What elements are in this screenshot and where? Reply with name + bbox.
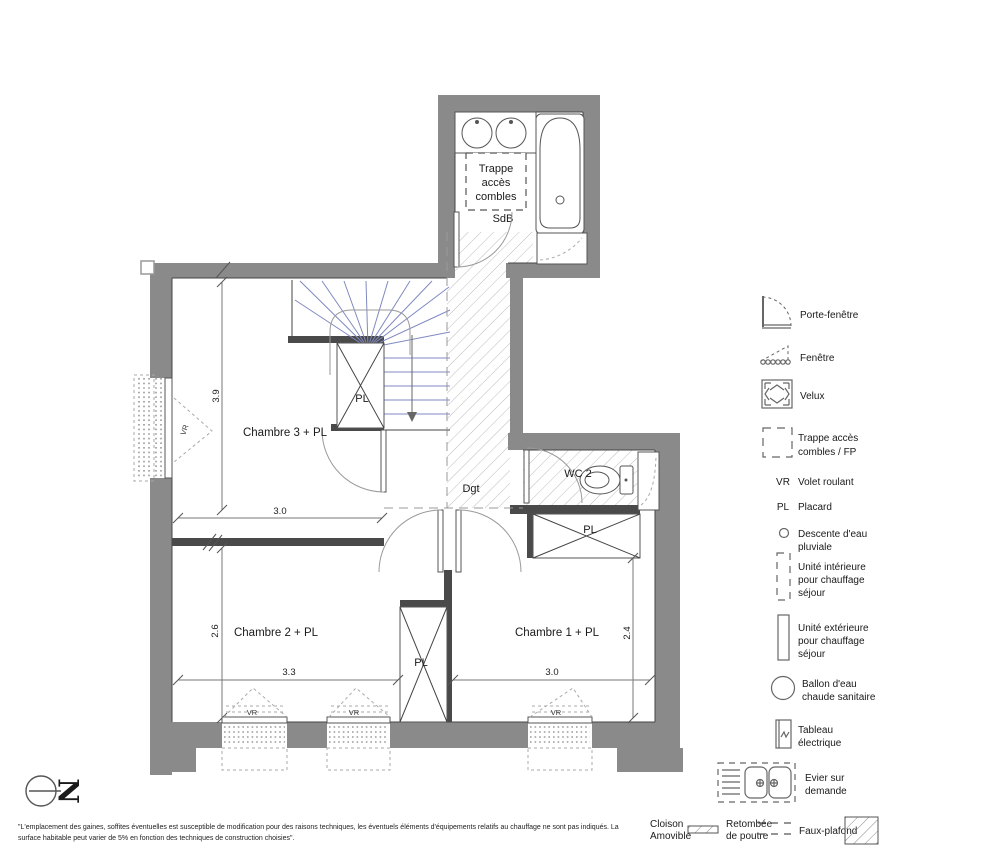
dgt-label: Dgt xyxy=(462,483,479,495)
legend-descente-line1: Descente d'eau xyxy=(798,529,867,540)
dim-ch2-width: 3.3 xyxy=(282,667,295,678)
legend-porte-fenetre: Porte-fenêtre xyxy=(800,310,859,321)
legend-fenetre: Fenêtre xyxy=(800,353,835,364)
window-left-vr: VR xyxy=(134,375,212,481)
stair-down-arrow xyxy=(407,412,417,422)
closet-under-stairs: PL xyxy=(337,343,384,428)
velux-icon xyxy=(762,380,792,408)
tableau-electrique-icon xyxy=(776,720,791,748)
footer-line1: "L'emplacement des gaines, soffites éven… xyxy=(18,824,619,831)
legend-unite-ext-line1: Unité extérieure xyxy=(798,623,869,634)
chambre1-label: Chambre 1 + PL xyxy=(515,627,600,639)
legend-unite-ext-line3: séjour xyxy=(798,649,826,660)
ballon-eau-icon xyxy=(772,677,795,700)
footer-line2: surface habitable peut varier de 5% en f… xyxy=(18,835,294,842)
cloison-amovible-icon xyxy=(688,826,718,833)
sdb-label: SdB xyxy=(493,213,514,225)
legend-tableau-line2: électrique xyxy=(798,738,842,749)
closet-ch2-label: PL xyxy=(414,657,427,669)
trappe-label-line2: accès xyxy=(482,177,511,189)
legend-vr-label: Volet roulant xyxy=(798,477,854,488)
chambre3-label: Chambre 3 + PL xyxy=(243,427,328,439)
dim-ch1-width: 3.0 xyxy=(545,667,558,678)
dim-ch2-height: 2.6 xyxy=(210,624,221,637)
north-letter: N xyxy=(52,778,85,804)
unite-interieure-icon xyxy=(777,553,790,600)
north-compass-icon: N xyxy=(26,776,85,806)
vr-bottom3-label: VR xyxy=(551,708,562,717)
closet-under-stairs-label: PL xyxy=(355,393,368,405)
legend-velux: Velux xyxy=(800,391,824,402)
legend-retombee-line1: Retombée xyxy=(726,819,773,830)
legend-unite-ext-line2: pour chauffage xyxy=(798,636,865,647)
dim-ch3-height: 3.9 xyxy=(211,389,222,402)
legend: Porte-fenêtre Fenêtre Velux Trappe accès… xyxy=(718,296,876,802)
descente-eau-marker xyxy=(141,261,154,274)
chambre2-label: Chambre 2 + PL xyxy=(234,627,319,639)
floor-plan: PL Trappe accès combles SdB WC 2 xyxy=(0,0,1000,857)
fenetre-icon xyxy=(761,346,790,364)
legend-unite-int-line3: séjour xyxy=(798,588,826,599)
faux-plafond-icon xyxy=(845,817,878,844)
legend-retombee-line2: de poutre xyxy=(726,831,769,842)
legend-cloison-line1: Cloison xyxy=(650,819,683,830)
legend-ballon-line1: Ballon d'eau xyxy=(802,679,857,690)
trappe-label-line3: combles xyxy=(476,191,517,203)
closet-ch1-label: PL xyxy=(583,524,596,536)
vr-bottom1-label: VR xyxy=(247,708,258,717)
legend-vr-abbr: VR xyxy=(776,477,790,488)
legend-trappe-line1: Trappe accès xyxy=(798,433,858,444)
evier-icon xyxy=(718,763,795,802)
legend-evier-line1: Evier sur xyxy=(805,773,845,784)
descente-eau-icon xyxy=(780,529,789,538)
legend-trappe-line2: combles / FP xyxy=(798,447,857,458)
legend-bottom-row: Cloison Amovible Retombée de poutre Faux… xyxy=(650,817,878,844)
legend-unite-int-line1: Unité intérieure xyxy=(798,562,866,573)
vr-bottom2-label: VR xyxy=(349,708,360,717)
legend-evier-line2: demande xyxy=(805,786,847,797)
legend-pl-abbr: PL xyxy=(777,502,790,513)
wc-label: WC 2 xyxy=(564,468,592,480)
trappe-acces-icon xyxy=(763,428,792,457)
legend-unite-int-line2: pour chauffage xyxy=(798,575,865,586)
footer-note: "L'emplacement des gaines, soffites éven… xyxy=(18,824,619,842)
legend-ballon-line2: chaude sanitaire xyxy=(802,692,876,703)
legend-tableau-line1: Tableau xyxy=(798,725,833,736)
porte-fenetre-icon xyxy=(762,296,791,328)
unite-exterieure-icon xyxy=(778,615,789,660)
legend-cloison-line2: Amovible xyxy=(650,831,692,842)
vr-left-label: VR xyxy=(179,423,191,436)
closet-ch2-right: PL xyxy=(400,607,447,722)
trappe-label-line1: Trappe xyxy=(479,163,513,175)
dim-ch3-width: 3.0 xyxy=(273,506,286,517)
legend-pl-label: Placard xyxy=(798,502,832,513)
closet-ch1-top: PL xyxy=(533,514,640,558)
dim-ch1-height: 2.4 xyxy=(622,626,633,639)
legend-descente-line2: pluviale xyxy=(798,542,832,553)
